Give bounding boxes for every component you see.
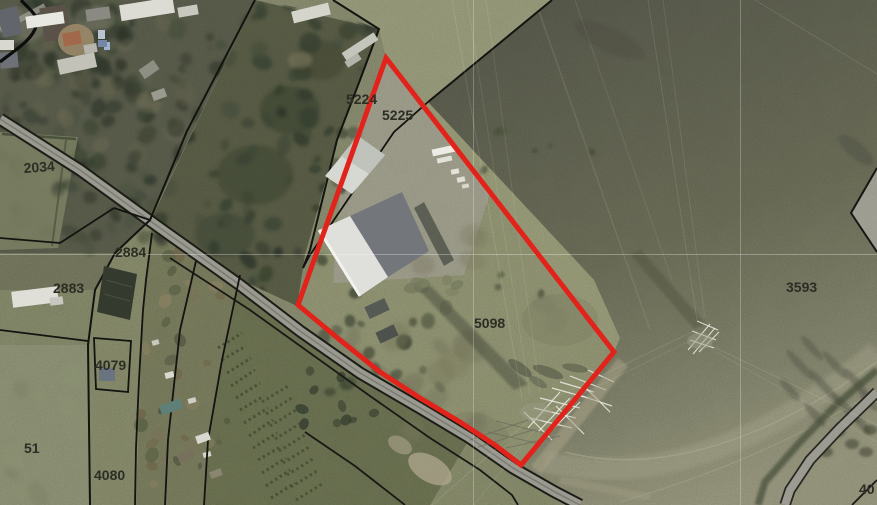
- svg-text:2034: 2034: [23, 158, 55, 176]
- svg-text:5224: 5224: [346, 91, 377, 107]
- svg-text:5225: 5225: [382, 107, 413, 123]
- svg-text:3593: 3593: [786, 279, 817, 295]
- svg-text:40: 40: [859, 481, 875, 497]
- svg-text:2884: 2884: [115, 244, 146, 260]
- svg-text:4079: 4079: [95, 357, 126, 373]
- svg-text:51: 51: [24, 440, 40, 456]
- svg-text:4080: 4080: [94, 467, 125, 483]
- svg-text:5098: 5098: [474, 315, 505, 331]
- svg-text:2883: 2883: [53, 280, 84, 296]
